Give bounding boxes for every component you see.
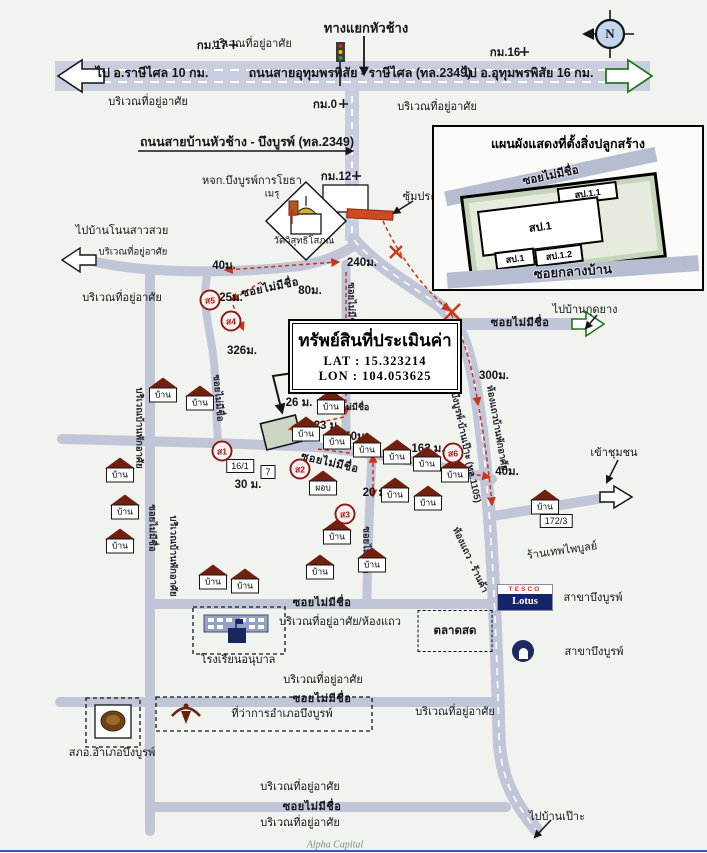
distance-label: 40ม.: [495, 463, 519, 481]
appraisal-location-map: แผนผังแสดงที่ตั้งสิ่งปลูกสร้าง ซอยไม่มีช…: [0, 0, 707, 853]
house-icon: บ้าน: [228, 569, 262, 594]
poi-label: หจก.บึงบูรพ์การโยธา: [202, 171, 302, 189]
area-label: บริเวณที่อยู่อาศัย: [99, 245, 168, 260]
km-marker-label: กม.16: [490, 44, 521, 62]
area-label: บริเวณบ้านพักอาศัย: [166, 515, 181, 596]
house-icon: บ้าน: [103, 529, 137, 554]
poi-marker: ส2: [290, 459, 311, 480]
house-icon: บ้าน: [320, 425, 354, 450]
district-office-label: ที่ว่าการอำเภอบึงบูรพ์: [231, 704, 332, 722]
distance-label: 300ม.: [479, 367, 509, 385]
watermark-brand: Alpha Capital: [307, 840, 363, 851]
area-label: บริเวณบ้านพักอาศัย: [132, 387, 147, 468]
tesco-lotus-logo: TESCO Lotus: [497, 584, 553, 611]
distance-label: 80ม.: [298, 282, 322, 300]
road-name-label: ซอยไม่มีชื่อ: [491, 313, 550, 331]
compass-n-label: N: [605, 26, 614, 42]
lotus-wordmark: Lotus: [498, 594, 552, 610]
inset-title: แผนผังแสดงที่ตั้งสิ่งปลูกสร้าง: [434, 134, 702, 154]
school-label: โรงเรียนอนุบาล: [201, 650, 276, 668]
house-icon: บ้าน: [528, 490, 562, 515]
house-icon: บ้าน: [380, 440, 414, 465]
tesco-wordmark: TESCO: [498, 585, 552, 594]
area-label: บริเวณที่อยู่อาศัย: [260, 813, 340, 831]
school-icon: [204, 615, 268, 643]
destination-label: เข้าชุมชน: [590, 443, 637, 461]
distance-label: 26 ม.: [286, 394, 313, 412]
house-icon: บ้าน: [103, 458, 137, 483]
destination-label: ไปบ้านโนนสาวสวย: [76, 221, 169, 239]
distance-label: 40ม.: [212, 257, 236, 275]
area-label: บริเวณที่อยู่อาศัย: [82, 288, 162, 306]
distance-label: 30 ม.: [235, 476, 262, 494]
police-station-label: สภอ.อำเภอบึงบูรพ์: [69, 743, 156, 761]
road-name-label: ซอยไม่มีชื่อ: [145, 504, 160, 551]
junction-label: ทางแยกหัวช้าง: [324, 18, 408, 39]
poi-marker: ส4: [221, 311, 242, 332]
destination-label: ไป อ.อุทุมพรพิสัย 16 กม.: [463, 63, 594, 83]
distance-label: 326ม.: [227, 342, 257, 360]
road-name-label: ถนนสายบ้านหัวช้าง - บึงบูรพ์ (ทล.2349): [140, 132, 354, 152]
house-icon: บ้าน: [303, 555, 337, 580]
house-icon: ผอบ: [306, 471, 340, 496]
poi-marker: ส6: [443, 443, 464, 464]
gate-arch-icon: [347, 209, 393, 220]
house-icon: บ้าน: [108, 495, 142, 520]
area-label: บริเวณที่อยู่อาศัย: [260, 777, 340, 795]
poi-label: เมรุ: [265, 187, 280, 202]
house-number-label: 172/3: [540, 514, 573, 528]
area-label: บริเวณที่อยู่อาศัย: [397, 97, 477, 115]
bank-logo: [512, 640, 534, 662]
area-label: บริเวณที่อยู่อาศัย: [108, 92, 188, 110]
crematorium-icon: [289, 201, 298, 215]
market-label: ตลาดสด: [418, 610, 493, 652]
branch-label: สาขาบึงบูรพ์: [564, 642, 623, 660]
house-icon: บ้าน: [183, 386, 217, 411]
distance-label: 240ม.: [347, 254, 377, 272]
destination-label: ไปบ้านกุดยาง: [553, 300, 618, 318]
house-icon: บ้าน: [146, 378, 180, 403]
property-longitude: LON : 104.053625: [295, 369, 455, 384]
nonsaosuay-arrow: [62, 248, 96, 272]
house-icon: บ้าน: [411, 486, 445, 511]
house-number-label: 16/1: [226, 459, 254, 473]
house-icon: บ้าน: [196, 565, 230, 590]
subject-property-box: ทรัพย์สินที่ประเมินค่า LAT : 15.323214 L…: [288, 319, 462, 394]
page-border-line: [0, 850, 707, 852]
house-icon: บ้าน: [350, 433, 384, 458]
destination-label: ไปบ้านเป๊าะ: [529, 807, 585, 825]
area-label: บริเวณที่อยู่อาศัย: [415, 702, 495, 720]
branch-label: สาขาบึงบูรพ์: [563, 588, 622, 606]
property-latitude: LAT : 15.323214: [295, 354, 455, 369]
house-icon: บ้าน: [355, 548, 389, 573]
destination-label: ไป อ.ราษีไศล 10 กม.: [96, 63, 209, 83]
road-name-label: ถนนสายอุทุมพรพิสัย - ราษีไศล (ทล.2349): [249, 63, 472, 83]
km-marker-label: กม.0: [313, 96, 337, 114]
building-plan-inset: แผนผังแสดงที่ตั้งสิ่งปลูกสร้าง ซอยไม่มีช…: [432, 125, 704, 291]
km-marker-label: กม.17: [197, 37, 228, 55]
temple-label: วัดวิสุทธิโสภณ: [274, 234, 335, 249]
inset-drawing: ซอยไม่มีชื่อ สป.1.1 สป.1 สป.1 สป.1.2 ซอย…: [449, 152, 687, 294]
house-icon: บ้าน: [289, 417, 323, 442]
property-title: ทรัพย์สินที่ประเมินค่า: [295, 327, 455, 354]
house-icon: บ้าน: [378, 478, 412, 503]
house-number-label: 7: [260, 465, 275, 479]
poi-marker: ส5: [200, 290, 221, 311]
community-arrow: [600, 486, 632, 508]
area-label: บริเวณที่อยู่อาศัย: [283, 670, 363, 688]
km-marker-label: กม.12: [321, 168, 352, 186]
police-station-icon: [95, 705, 131, 738]
road-name-label: ซอยไม่มีชื่อ: [293, 593, 352, 611]
temple-hall-icon: [291, 214, 321, 234]
area-label: บริเวณที่อยู่อาศัย/ห้องแถว: [279, 612, 401, 630]
pointer-arrows: [535, 315, 618, 837]
poi-marker: ส1: [212, 441, 233, 462]
poi-marker: ส3: [335, 504, 356, 525]
distance-label: 25ม.: [219, 289, 243, 307]
